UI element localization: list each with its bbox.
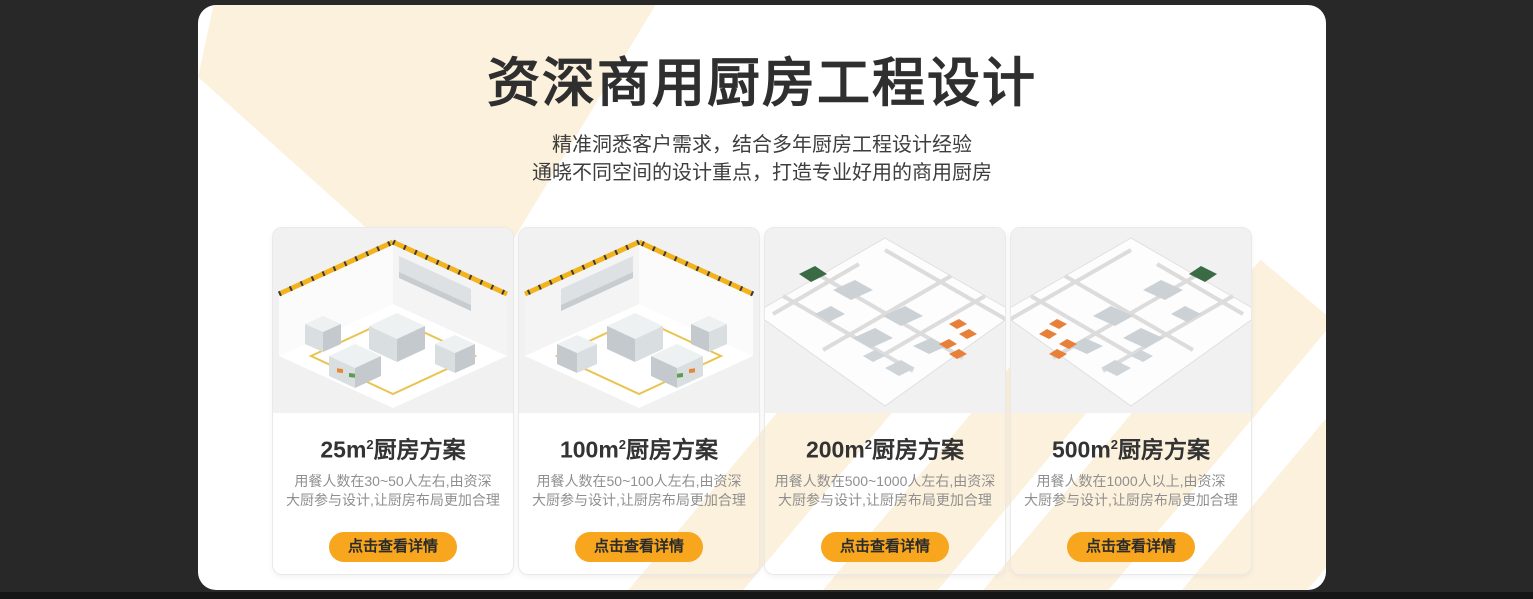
section-subtitle: 精准洞悉客户需求，结合多年厨房工程设计经验 通晓不同空间的设计重点，打造专业好用… [198, 131, 1326, 187]
page-bottom-strip [0, 592, 1533, 599]
card-body: 25m2厨房方案 用餐人数在30~50人左右,由资深大厨参与设计,让厨房布局更加… [273, 413, 513, 574]
kitchen-floorplan-render-image [1011, 228, 1251, 413]
kitchen-plan-cards: 25m2厨房方案 用餐人数在30~50人左右,由资深大厨参与设计,让厨房布局更加… [272, 227, 1252, 575]
section-subtitle-line2: 通晓不同空间的设计重点，打造专业好用的商用厨房 [198, 159, 1326, 187]
kitchen-3d-render-image [519, 228, 759, 413]
plan-description: 用餐人数在30~50人左右,由资深大厨参与设计,让厨房布局更加合理 [281, 472, 505, 510]
plan-description: 用餐人数在1000人以上,由资深大厨参与设计,让厨房布局更加合理 [1019, 472, 1243, 510]
card-body: 200m2厨房方案 用餐人数在500~1000人左右,由资深大厨参与设计,让厨房… [765, 413, 1005, 574]
view-details-button[interactable]: 点击查看详情 [1067, 532, 1195, 562]
plan-title: 200m2厨房方案 [773, 430, 997, 465]
plan-title: 100m2厨房方案 [527, 430, 751, 465]
kitchen-plan-card-200m2[interactable]: 200m2厨房方案 用餐人数在500~1000人左右,由资深大厨参与设计,让厨房… [764, 227, 1006, 575]
section-subtitle-line1: 精准洞悉客户需求，结合多年厨房工程设计经验 [198, 131, 1326, 159]
plan-title: 25m2厨房方案 [281, 430, 505, 465]
plan-title-sup: 2 [619, 437, 626, 452]
view-details-button[interactable]: 点击查看详情 [575, 532, 703, 562]
kitchen-floorplan-render-image [765, 228, 1005, 413]
content-panel: 资深商用厨房工程设计 精准洞悉客户需求，结合多年厨房工程设计经验 通晓不同空间的… [198, 5, 1326, 590]
kitchen-plan-card-25m2[interactable]: 25m2厨房方案 用餐人数在30~50人左右,由资深大厨参与设计,让厨房布局更加… [272, 227, 514, 575]
card-body: 100m2厨房方案 用餐人数在50~100人左右,由资深大厨参与设计,让厨房布局… [519, 413, 759, 574]
kitchen-3d-render-image [273, 228, 513, 413]
kitchen-plan-card-500m2[interactable]: 500m2厨房方案 用餐人数在1000人以上,由资深大厨参与设计,让厨房布局更加… [1010, 227, 1252, 575]
section-header: 资深商用厨房工程设计 精准洞悉客户需求，结合多年厨房工程设计经验 通晓不同空间的… [198, 5, 1326, 187]
view-details-button[interactable]: 点击查看详情 [329, 532, 457, 562]
plan-title-sup: 2 [366, 437, 373, 452]
plan-title-sup: 2 [865, 437, 872, 452]
view-details-button[interactable]: 点击查看详情 [821, 532, 949, 562]
plan-description: 用餐人数在500~1000人左右,由资深大厨参与设计,让厨房布局更加合理 [773, 472, 997, 510]
section-title: 资深商用厨房工程设计 [198, 53, 1326, 115]
plan-title: 500m2厨房方案 [1019, 430, 1243, 465]
plan-title-sup: 2 [1111, 437, 1118, 452]
page: 资深商用厨房工程设计 精准洞悉客户需求，结合多年厨房工程设计经验 通晓不同空间的… [0, 0, 1533, 599]
plan-description: 用餐人数在50~100人左右,由资深大厨参与设计,让厨房布局更加合理 [527, 472, 751, 510]
kitchen-plan-card-100m2[interactable]: 100m2厨房方案 用餐人数在50~100人左右,由资深大厨参与设计,让厨房布局… [518, 227, 760, 575]
card-body: 500m2厨房方案 用餐人数在1000人以上,由资深大厨参与设计,让厨房布局更加… [1011, 413, 1251, 574]
